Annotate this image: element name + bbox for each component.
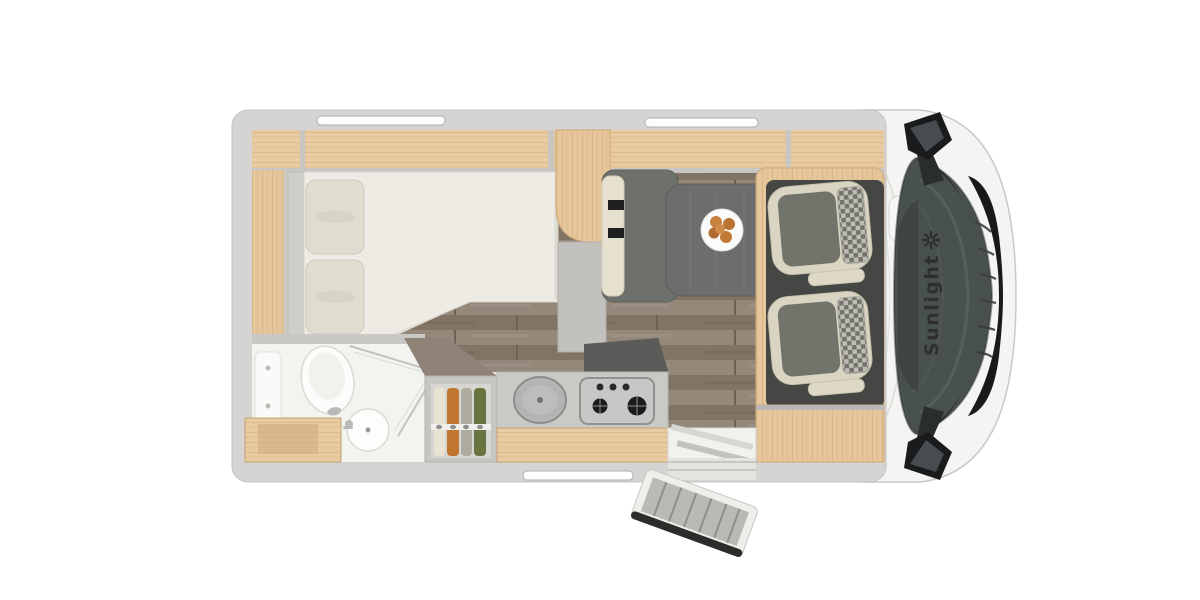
wall-window-slot [523, 471, 633, 480]
shower-panel [255, 352, 281, 424]
floorplan-canvas: Sunlight [0, 0, 1200, 600]
food-item [715, 224, 725, 234]
burner-small [623, 384, 630, 391]
clothes-gray [461, 388, 472, 456]
seatbelt-mount [608, 200, 624, 210]
clothes-green [474, 388, 486, 456]
dinette [602, 170, 778, 302]
locker-divider [786, 130, 791, 173]
cab-rear-cabinet-wood [756, 405, 884, 462]
hanger-hook [436, 425, 442, 429]
hanger-hook [463, 425, 469, 429]
clothes-cream [434, 388, 445, 456]
wall-window-slot [645, 118, 758, 127]
seatbelt-mount [608, 228, 624, 238]
kitchen-sink [514, 377, 566, 423]
dashboard-shadow [898, 200, 918, 392]
gas-hob [580, 378, 654, 424]
bed-foot-panel [558, 242, 606, 352]
wall-window-slot [317, 116, 445, 125]
clothes-orange [447, 388, 459, 456]
kitchen-front-wood [497, 428, 668, 462]
locker-divider [300, 130, 305, 173]
burner-small [610, 384, 617, 391]
entrance [668, 424, 758, 480]
head-cabinet [288, 172, 304, 338]
hanger-hook [450, 425, 456, 429]
plate-of-food [701, 209, 743, 251]
burner-small [597, 384, 604, 391]
side-shelf-wood [252, 170, 286, 338]
motorhome-floorplan: Sunlight [0, 0, 1200, 600]
wardrobe [425, 376, 497, 462]
habitation-area [232, 110, 886, 482]
brand-logo-text: Sunlight [921, 254, 943, 356]
locker-divider [548, 130, 554, 173]
hanger-hook [477, 425, 483, 429]
cab-interior [756, 168, 884, 462]
bathroom-partition-wall [252, 334, 425, 344]
